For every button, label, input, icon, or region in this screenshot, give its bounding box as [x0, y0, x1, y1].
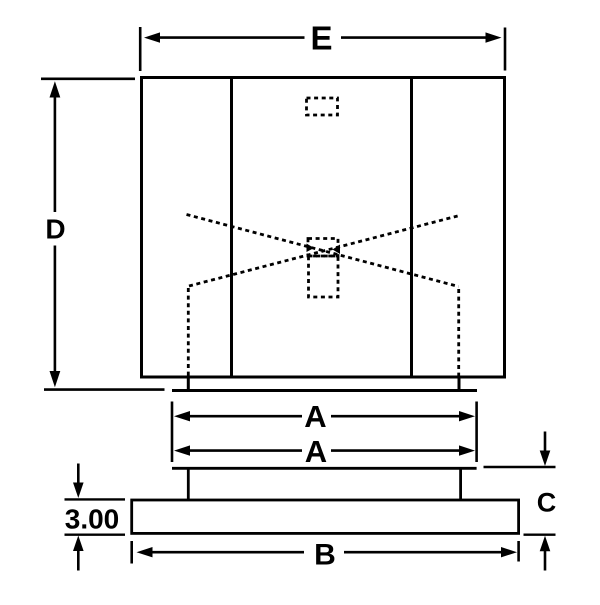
svg-text:A: A [304, 399, 326, 434]
svg-text:E: E [310, 20, 332, 57]
svg-text:B: B [314, 539, 336, 572]
svg-text:A: A [305, 434, 327, 469]
svg-text:C: C [537, 488, 557, 518]
svg-text:3.00: 3.00 [65, 504, 120, 535]
svg-text:D: D [45, 214, 65, 245]
